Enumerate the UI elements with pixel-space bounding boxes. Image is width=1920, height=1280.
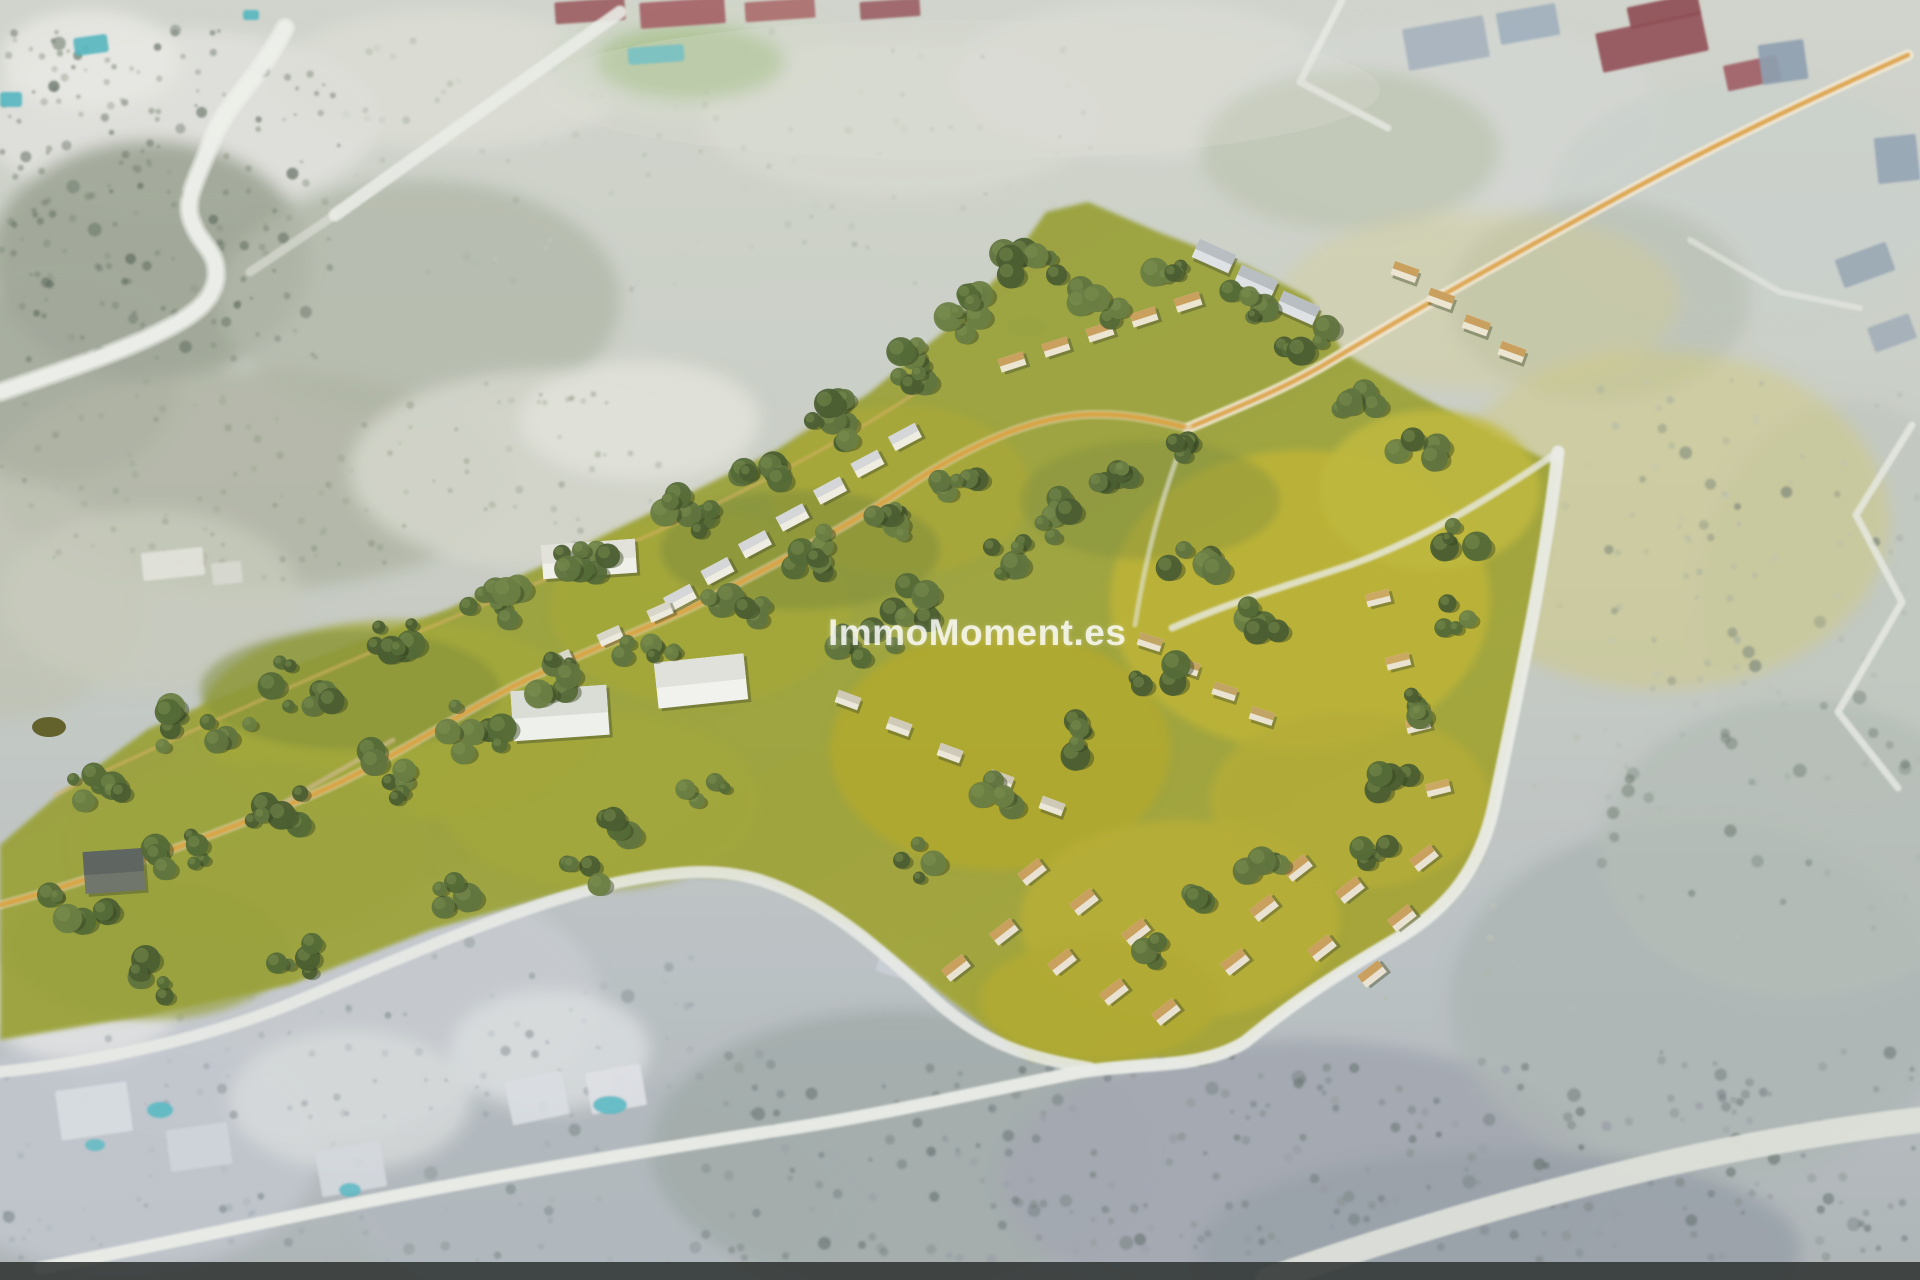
aerial-scene	[0, 0, 1920, 1280]
bottom-dark-strip	[0, 1262, 1920, 1280]
aerial-masterplan-render: ImmoMoment.es	[0, 0, 1920, 1280]
